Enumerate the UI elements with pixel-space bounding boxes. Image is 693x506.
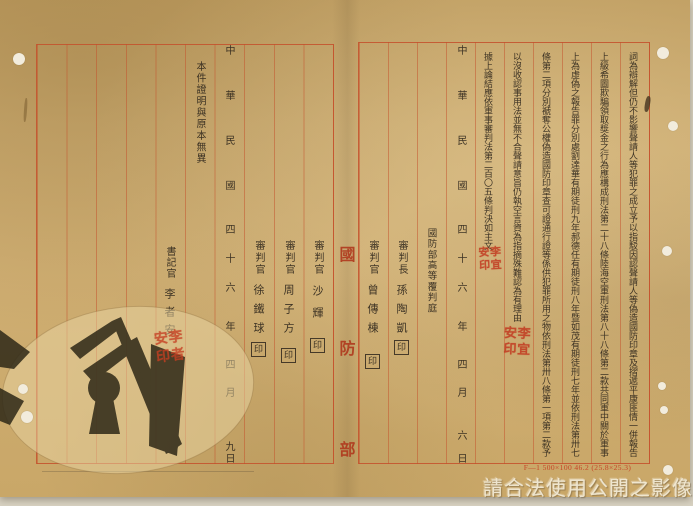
date-era-left: 中華民國 <box>223 45 233 225</box>
punch-hole <box>21 411 33 423</box>
seal-mark-box: 印 <box>394 340 409 355</box>
official-name: 孫陶凱 <box>395 284 406 341</box>
seal-mark-box: 印 <box>251 342 266 357</box>
judgment-text-column-3: 上為虛偽之報告罪分別處劉達華有期徒刑九年郝德任有期徒刑八年暨如茂有期徒刑七年並依… <box>570 52 579 457</box>
judgment-text-column-1: 詞為辯解但仍不影響聲請人等犯罪之成立予以指駁因認聲請人等偽造國防印章及摺遞平康匪… <box>628 52 637 457</box>
punch-hole <box>13 53 25 65</box>
seal-mark-box: 印 <box>310 338 325 353</box>
seal-mark-box: 印 <box>281 348 296 363</box>
official-name: 沙輝 <box>311 285 322 329</box>
official-title: 審判官 <box>367 240 377 276</box>
judgment-text-column-5: 以沒收認事用法並無不合聲請意旨仍執空言資為指摘殊難認為有理由 <box>512 52 521 322</box>
official-title: 審判官 <box>283 240 293 276</box>
date-year-label-right: 年 <box>455 321 465 331</box>
seal-mark-box: 印 <box>365 354 380 369</box>
official-title: 審判官 <box>312 240 322 276</box>
judgment-text-column-4: 條第二項分別褫奪公權偽造國防印章查可證通行證等係供犯罪所用之物依刑法第卅八條第一… <box>541 52 550 457</box>
official-title: 審判官 <box>253 240 263 276</box>
paper-sheet: 國 防 部 詞為辯解但仍不影響聲請人等犯罪之成立予以指駁因認聲請人等偽造國防印章… <box>0 0 690 497</box>
form-code-text: F—1 500×100 46.2 (25.8×25.3) <box>490 463 665 472</box>
punch-hole <box>668 121 678 131</box>
ink-stain <box>23 98 28 122</box>
gutter-ministry-char: 國 <box>339 241 356 265</box>
punch-hole <box>658 382 666 390</box>
archive-watermark: 請合法使用公開之影像 <box>483 472 693 501</box>
official-name: 徐鐵球 <box>252 284 263 341</box>
date-month-right: 四月 <box>455 359 465 415</box>
date-day-left: 九 <box>223 441 233 451</box>
date-day-right: 六 <box>455 430 465 440</box>
scanned-judgment-document: 國 防 部 詞為辯解但仍不影響聲請人等犯罪之成立予以指駁因認聲請人等偽造國防印章… <box>0 0 693 506</box>
date-year-left: 四十六 <box>223 224 233 311</box>
punch-hole <box>660 406 668 414</box>
certification-statement: 本件證明與原本無異 <box>194 61 204 165</box>
court-name: 國防部高等覆判庭 <box>425 228 435 314</box>
red-seal: 李宜安印 <box>476 245 501 280</box>
punch-hole <box>662 246 672 256</box>
punch-hole <box>18 384 28 394</box>
clerk-red-seal: 李者安印 <box>150 328 185 375</box>
date-year-right: 四十六 <box>455 224 465 311</box>
date-era-right: 中華民國 <box>455 45 465 225</box>
gutter-ministry-char: 部 <box>339 436 356 460</box>
clerk-title: 書記官 <box>164 246 174 279</box>
punch-hole <box>657 47 669 59</box>
date-year-label-left: 年 <box>223 321 233 331</box>
date-month-left: 四月 <box>223 359 233 415</box>
date-day-label-right: 日 <box>455 453 465 463</box>
pencil-line-artifact <box>42 471 254 472</box>
gutter-ministry-char: 防 <box>339 335 356 359</box>
official-title: 審判長 <box>396 240 406 276</box>
red-seal: 李宜安印 <box>501 326 530 365</box>
judgment-text-column-2: 上級希圖欺騙領取獎金之行為應構成刑法第二十八條陸海空軍刑法第八十八條第二款共同軍… <box>599 52 608 457</box>
date-day-label-left: 日 <box>223 453 233 463</box>
official-name: 周子方 <box>282 284 293 341</box>
official-name: 曾傳棟 <box>366 284 377 341</box>
judgment-text-column-6: 據上論結應依軍事審判法第二百〇五條判決如主文 <box>483 52 492 250</box>
